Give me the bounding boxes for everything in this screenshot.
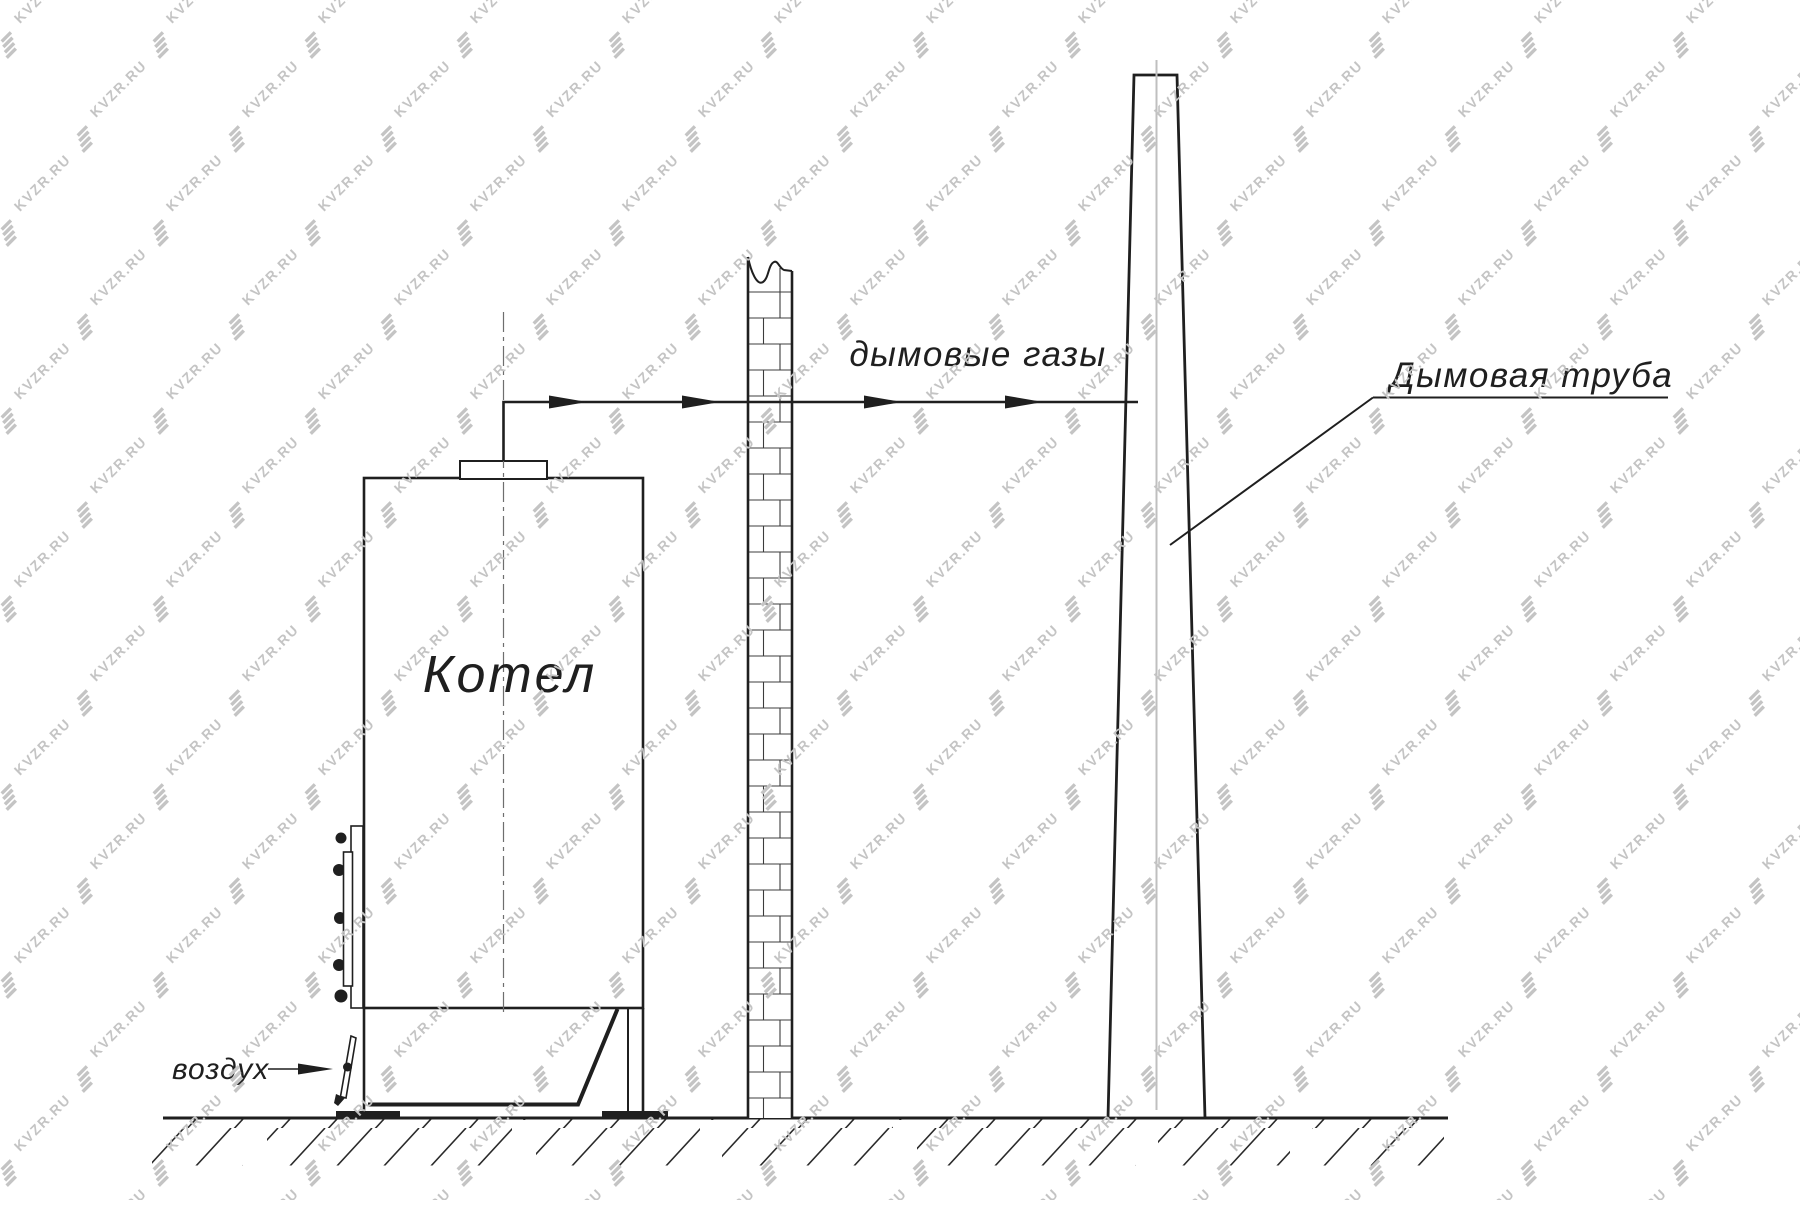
air-inlet: воздух xyxy=(172,1053,333,1086)
boiler xyxy=(333,312,668,1119)
ground xyxy=(152,1118,1448,1166)
air-label: воздух xyxy=(172,1053,269,1086)
chimney-callout: Дымовая труба xyxy=(1170,356,1673,545)
air-arrowhead xyxy=(298,1064,333,1075)
boiler-base xyxy=(336,1008,668,1119)
technical-diagram: Котел дымовые газы Дымовая труба воздух xyxy=(0,0,1800,1200)
boiler-foot-right xyxy=(602,1111,668,1119)
ground-hatching xyxy=(152,1120,1444,1167)
flow-arrowhead xyxy=(1005,396,1043,409)
callout-leader xyxy=(1170,398,1373,546)
flue-gas-line xyxy=(504,396,1139,462)
brick-wall xyxy=(748,257,792,1118)
boiler-label: Котел xyxy=(423,646,597,704)
ash-pan xyxy=(368,1009,618,1105)
boiler-foot-left xyxy=(336,1111,400,1119)
flue-gases-label: дымовые газы xyxy=(849,335,1106,374)
air-damper-flap xyxy=(334,1036,356,1106)
flow-arrowhead xyxy=(864,396,902,409)
door-panel xyxy=(344,852,353,986)
chimney-label: Дымовая труба xyxy=(1386,356,1673,395)
flow-arrowhead xyxy=(682,396,720,409)
boiler-chimney-scheme: Котел дымовые газы Дымовая труба воздух xyxy=(0,0,1800,1200)
flow-arrowhead xyxy=(549,396,587,409)
boiler-door xyxy=(333,826,363,1008)
chimney xyxy=(1108,60,1205,1118)
wall-fill xyxy=(748,257,792,1118)
